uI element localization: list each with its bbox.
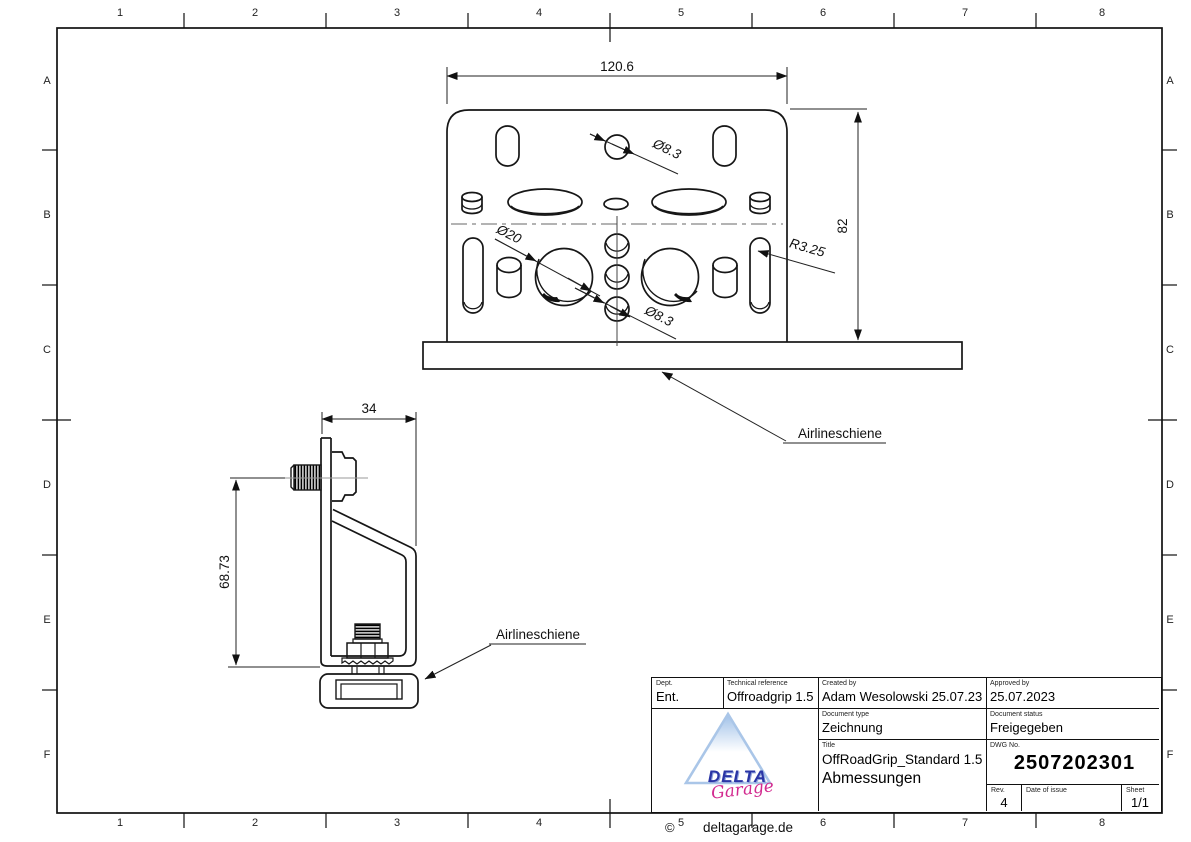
grid-col-top-7: 7 [953,7,977,23]
tb-line [986,678,987,811]
dwg-no-value: 2507202301 [986,752,1163,775]
grid-row-left-c: C [35,344,59,360]
grid-col-top-4: 4 [527,7,551,23]
dim-large-hole: Ø20 [493,221,524,247]
grid-row-left-e: E [35,614,59,630]
grid-row-left-a: A [35,75,59,91]
grid-row-right-c: C [1158,344,1182,360]
slot-lower-right [750,238,770,313]
grid-row-left-f: F [35,749,59,765]
sheet-label: Sheet [1126,787,1144,794]
grid-col-bottom-1: 1 [108,817,132,833]
logo-cell: DELTA Garage © deltagarage.de [652,708,818,814]
dim-slot-radius: R3.25 [788,235,827,259]
rev-label: Rev. [991,787,1005,794]
tb-line [818,739,1159,740]
dept-value: Ent. [656,689,679,704]
sheet-value: 1/1 [1121,795,1159,810]
rail-side-view [320,674,418,708]
rail-top-view [423,342,962,369]
slot-lower-left [463,238,483,313]
technical-reference-value: Offroadgrip 1.5 [727,689,813,704]
cylinder-lower-right [713,258,737,298]
dim-height: 82 [835,218,850,233]
drawing-sheet: 120.6 82 Ø8.3 Ø20 Ø8.3 R3.25 Airlineschi… [0,0,1191,842]
dim-side-height: 68.73 [217,555,232,589]
grid-row-right-a: A [1158,75,1182,91]
date-of-issue-label: Date of issue [1026,787,1067,794]
title-block: Dept. Ent. Technical reference Offroadgr… [651,677,1162,813]
document-status-value: Freigegeben [990,720,1063,735]
approved-by-label: Approved by [990,680,1029,687]
grid-col-bottom-8: 8 [1090,817,1114,833]
slot-top-right [713,126,736,166]
grid-col-top-2: 2 [243,7,267,23]
slot-oval-mid-left [508,189,582,215]
tb-line [818,678,819,811]
title-label: Title [822,742,835,749]
grid-row-left-d: D [35,479,59,495]
cylinder-mid-right [750,193,770,214]
rail-label-front: Airlineschiene [798,426,882,441]
grid-col-top-8: 8 [1090,7,1114,23]
dim-width: 120.6 [600,59,634,74]
hole-oval-mid-center [604,199,628,210]
grid-row-right-d: D [1158,479,1182,495]
document-type-value: Zeichnung [822,720,883,735]
grid-col-bottom-3: 3 [385,817,409,833]
document-type-label: Document type [822,711,869,718]
grid-col-bottom-4: 4 [527,817,551,833]
dwg-no-label: DWG No. [990,742,1020,749]
slot-top-left [496,126,519,166]
created-by-label: Created by [822,680,856,687]
grid-col-top-1: 1 [108,7,132,23]
title-line2: Abmessungen [822,770,921,788]
grid-col-bottom-6: 6 [811,817,835,833]
document-status-label: Document status [990,711,1043,718]
cylinder-mid-left [462,193,482,214]
grid-row-right-b: B [1158,209,1182,225]
cylinder-lower-left [497,258,521,298]
approved-by-value: 25.07.2023 [990,689,1055,704]
grid-col-bottom-2: 2 [243,817,267,833]
technical-reference-label: Technical reference [727,680,788,687]
title-line1: OffRoadGrip_Standard 1.5 [822,752,982,767]
plate-edge-left [321,438,327,666]
grid-col-bottom-7: 7 [953,817,977,833]
rev-value: 4 [986,795,1022,810]
grid-col-top-3: 3 [385,7,409,23]
grid-col-top-6: 6 [811,7,835,23]
copyright-symbol: © [665,820,675,835]
tb-line [723,678,724,708]
tb-line [986,784,1159,785]
dim-depth: 34 [361,401,377,416]
grid-row-left-b: B [35,209,59,225]
grid-col-top-5: 5 [669,7,693,23]
dept-label: Dept. [656,680,673,687]
rail-label-side: Airlineschiene [496,627,580,642]
flange-nut-profile [332,452,356,501]
grid-row-right-e: E [1158,614,1182,630]
dim-top-hole: Ø8.3 [650,135,684,162]
slot-oval-mid-right [652,189,726,215]
logo-website: deltagarage.de [690,820,806,835]
hole-top-center [605,135,629,159]
created-by-value: Adam Wesolowski 25.07.23 [822,689,982,704]
hole-large-right [642,249,699,306]
